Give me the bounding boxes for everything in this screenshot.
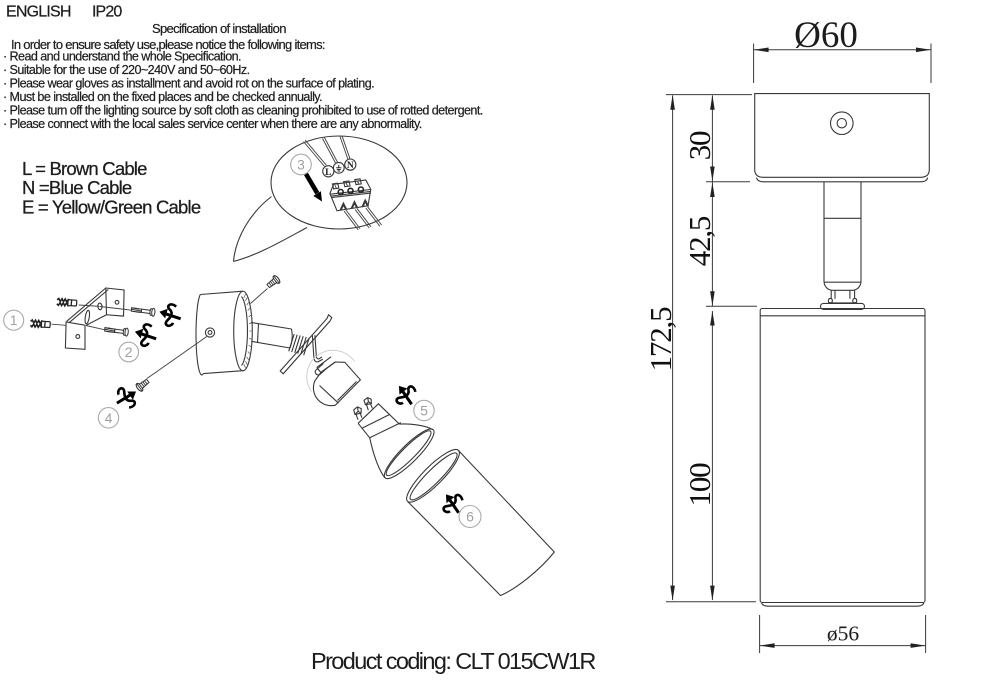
svg-text:6: 6 [466,509,474,525]
svg-text:2: 2 [125,344,133,360]
svg-text:42,5: 42,5 [682,216,717,266]
svg-text:· Please wear gloves as instal: · Please wear gloves as installment and … [3,77,374,91]
svg-text:100: 100 [682,463,717,507]
svg-text:5: 5 [420,403,428,419]
svg-text:4: 4 [105,410,113,426]
svg-text:N =Blue Cable: N =Blue Cable [22,177,132,198]
svg-text:N: N [347,161,354,171]
svg-text:L: L [325,168,331,178]
svg-text:IP20: IP20 [92,4,122,21]
svg-text:Product coding: CLT 015CW1R: Product coding: CLT 015CW1R [311,648,595,674]
svg-text:ENGLISH: ENGLISH [6,4,71,21]
svg-text:· Read and understand the whol: · Read and understand the whole Specific… [3,50,241,64]
svg-text:30: 30 [682,131,717,160]
svg-text:· Suitable for the use of 220~: · Suitable for the use of 220~240V and 5… [3,63,250,77]
svg-text:· Must be installed on the fix: · Must be installed on the fixed places … [3,90,322,104]
svg-text:1: 1 [10,312,18,328]
svg-text:3: 3 [297,158,305,173]
svg-text:Specification of installation: Specification of installation [152,21,286,36]
svg-text:ø56: ø56 [827,622,860,646]
svg-text:· Please connect with the loca: · Please connect with the local sales se… [3,117,422,131]
svg-text:L = Brown Cable: L = Brown Cable [22,158,147,179]
svg-text:172,5: 172,5 [643,307,678,371]
svg-text:· Please turn off the lighting: · Please turn off the lighting source by… [3,104,483,118]
svg-text:E = Yellow/Green Cable: E = Yellow/Green Cable [22,197,201,218]
